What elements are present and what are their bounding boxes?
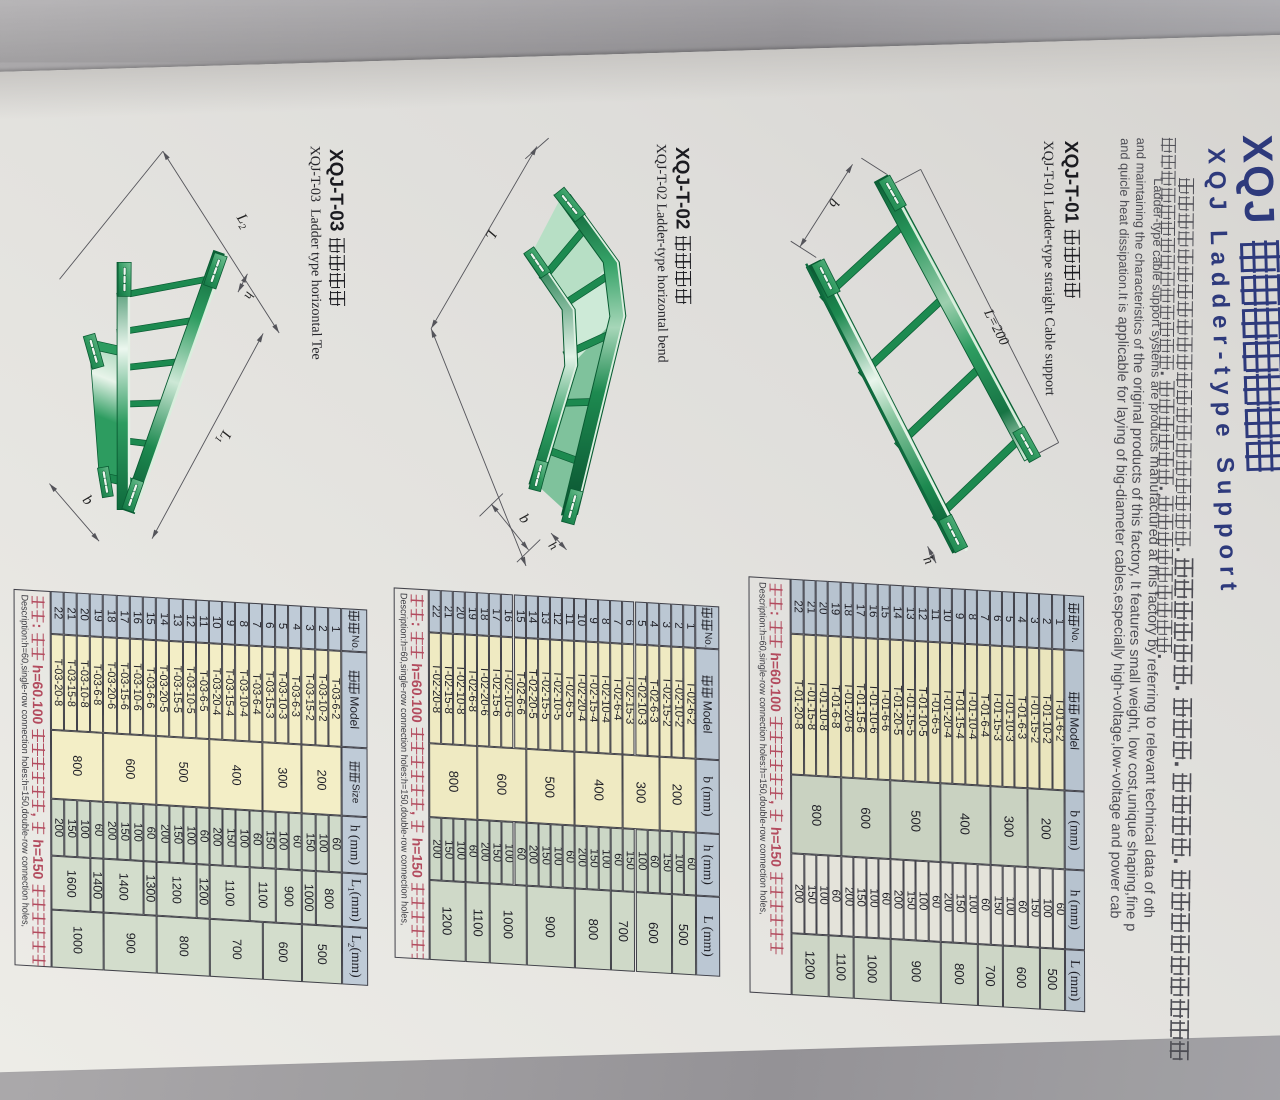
svg-text:b: b <box>79 492 96 508</box>
svg-text:L: L <box>482 226 501 242</box>
svg-text:b: b <box>824 195 842 210</box>
svg-text:b: b <box>515 511 532 527</box>
svg-text:L=200: L=200 <box>980 306 1011 348</box>
svg-text:L1: L1 <box>212 426 235 447</box>
svg-text:L2: L2 <box>231 210 254 232</box>
svg-text:h: h <box>546 538 562 552</box>
svg-text:h: h <box>919 554 936 567</box>
svg-text:h: h <box>241 290 257 302</box>
